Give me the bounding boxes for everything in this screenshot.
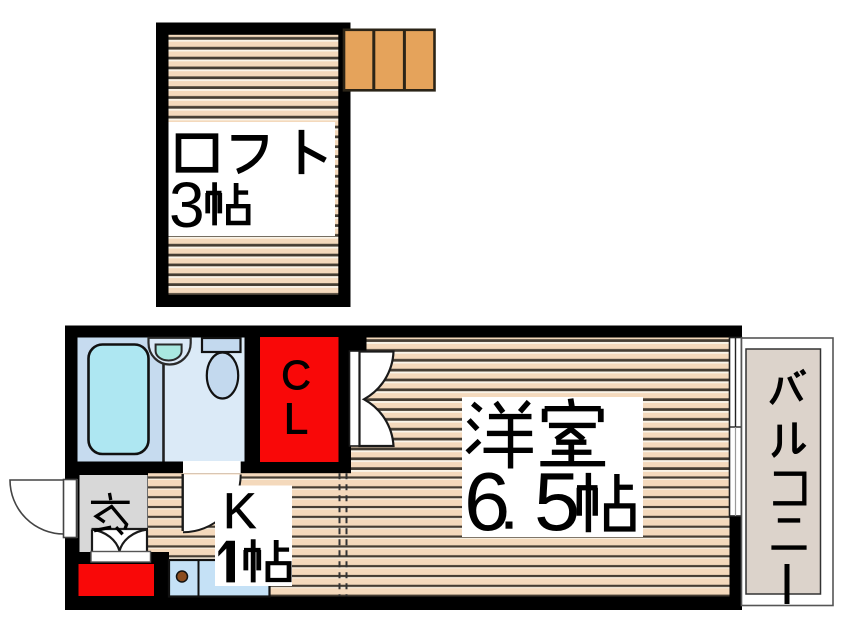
svg-text:L: L xyxy=(284,395,308,444)
svg-text:C: C xyxy=(281,352,311,398)
svg-text:5: 5 xyxy=(534,455,580,548)
svg-text:K: K xyxy=(223,483,256,539)
svg-text:6: 6 xyxy=(464,455,510,548)
svg-text:3: 3 xyxy=(169,169,205,241)
